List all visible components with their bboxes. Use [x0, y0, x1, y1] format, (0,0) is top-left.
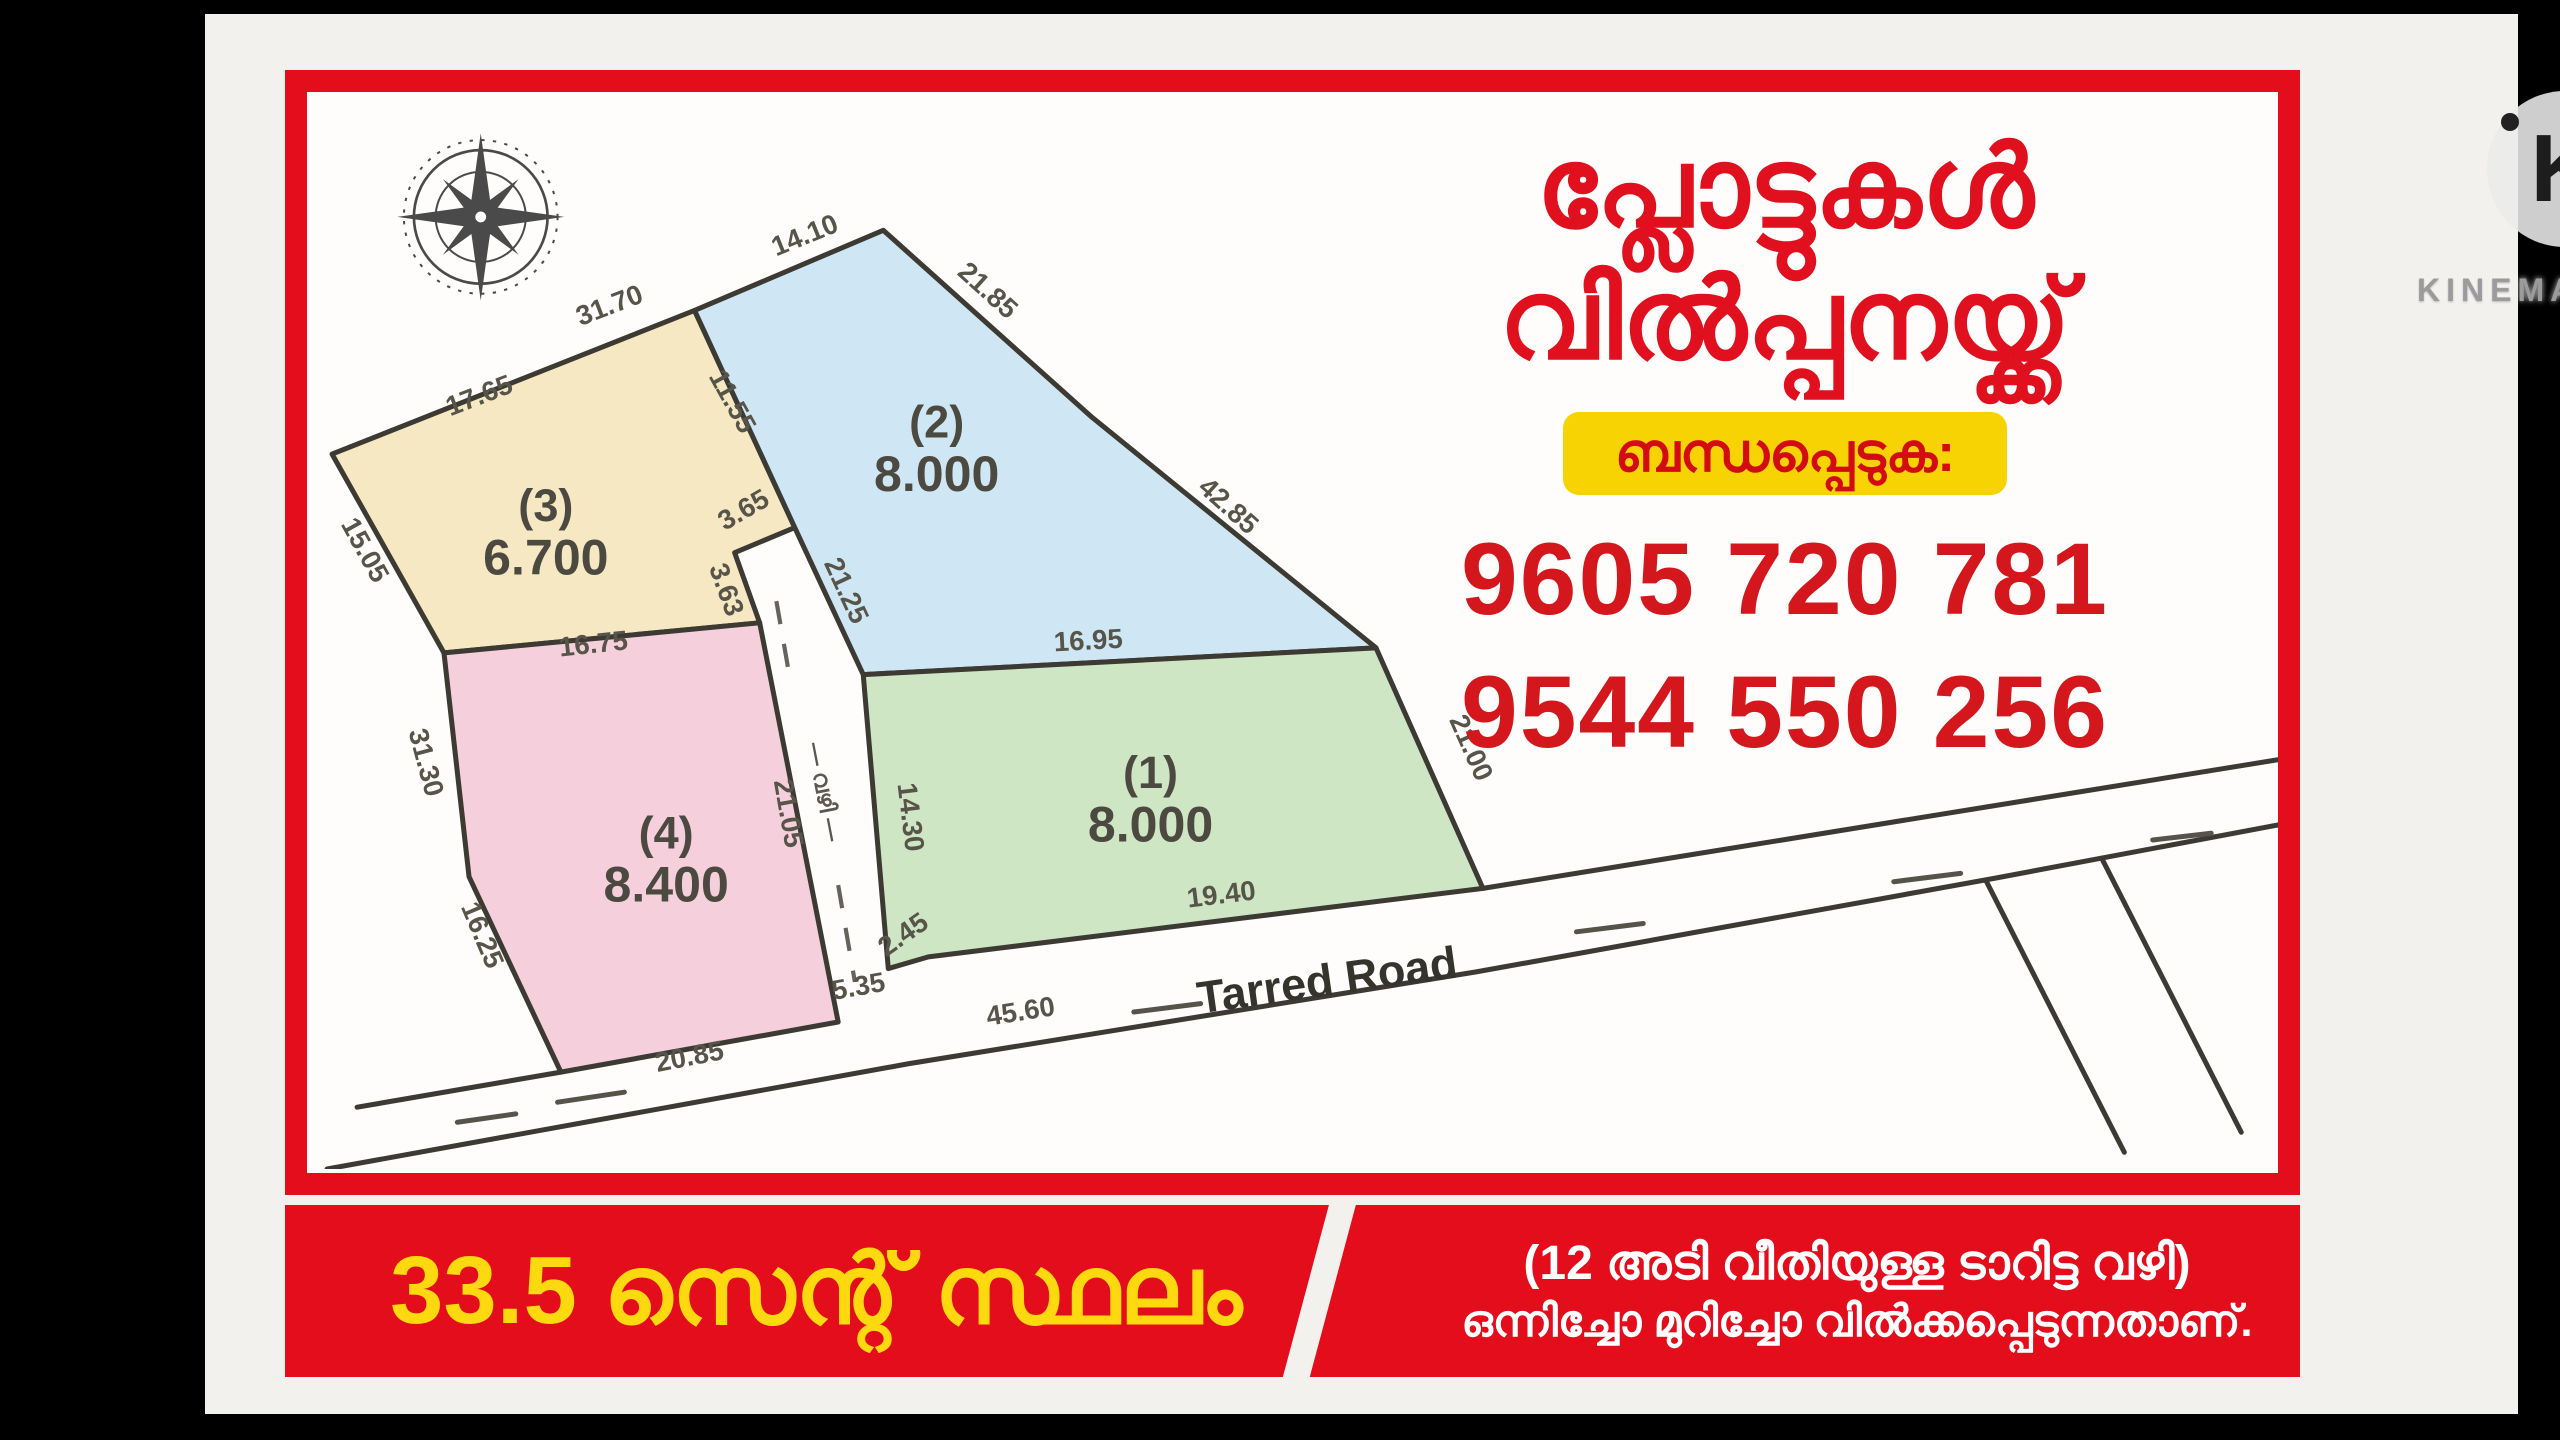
plot-3-number: (3) — [518, 480, 573, 531]
bottom-banner: 33.5 സെന്റ് സ്ഥലം (12 അടി വീതിയുള്ള ടാറി… — [285, 1205, 2300, 1377]
ad-title-line2: വിൽപ്പനയ്ക്ക് — [1310, 254, 2260, 386]
plot-2-area: 8.000 — [874, 446, 999, 502]
road-fork-edge — [2103, 860, 2242, 1132]
measure-p1-top: 16.95 — [1053, 623, 1123, 658]
measure-road-left: 5.35 — [829, 966, 887, 1006]
compass-icon — [397, 133, 564, 300]
banner-divider — [1278, 1205, 1357, 1377]
plot-4-area: 8.400 — [603, 857, 728, 913]
plot-4-number: (4) — [639, 807, 694, 858]
banner-area-text: 33.5 സെന്റ് സ്ഥലം — [390, 1205, 1242, 1377]
banner-note-line1: (12 അടി വീതിയുള്ള ടാറിട്ട വഴി) — [1407, 1234, 2300, 1294]
kinemaster-k-letter: K — [2530, 114, 2560, 224]
plot-2-region — [695, 230, 1376, 674]
plot-3-area: 6.700 — [483, 529, 608, 585]
phone-number-2: 9544 550 256 — [1310, 646, 2260, 779]
plot-1-area: 8.000 — [1088, 797, 1213, 853]
poster: — വഴി — (3) 6.700 (2) 8.000 (1) 8.000 (4… — [285, 70, 2300, 1195]
phone-number-1: 9605 720 781 — [1310, 513, 2260, 646]
logo-dot-icon — [2501, 113, 2519, 131]
plot-1-number: (1) — [1123, 747, 1178, 798]
road-fork-edge — [1986, 880, 2125, 1152]
measure-p4-left-upper: 31.30 — [403, 725, 451, 800]
contact-label-badge: ബന്ധപ്പെടുക: — [1563, 412, 2007, 495]
lane-label: — വഴി — — [802, 740, 847, 844]
kinemaster-watermark-text: KINEMASTER — [2417, 272, 2560, 309]
banner-note: (12 അടി വീതിയുള്ള ടാറിട്ട വഴി) ഒന്നിച്ചോ… — [1407, 1205, 2300, 1377]
measure-road-frontage: 45.60 — [984, 990, 1057, 1031]
plot-2-number: (2) — [909, 396, 964, 447]
video-frame: — വഴി — (3) 6.700 (2) 8.000 (1) 8.000 (4… — [205, 14, 2518, 1414]
measure-top-right: 31.70 — [572, 278, 647, 332]
banner-note-line2: ഒന്നിച്ചോ മുറിച്ചോ വിൽക്കപ്പെടുന്നതാണ്. — [1407, 1294, 2300, 1349]
road-label: Tarred Road — [1194, 936, 1461, 1023]
video-screen: — വഴി — (3) 6.700 (2) 8.000 (1) 8.000 (4… — [0, 0, 2560, 1440]
kinemaster-logo-icon: K — [2487, 91, 2560, 247]
ad-title-line1: പ്ലോട്ടുകൾ — [1310, 122, 2260, 254]
ad-text-block: പ്ലോട്ടുകൾ വിൽപ്പനയ്ക്ക് ബന്ധപ്പെടുക: 96… — [1310, 122, 2260, 779]
phone-numbers: 9605 720 781 9544 550 256 — [1310, 513, 2260, 778]
